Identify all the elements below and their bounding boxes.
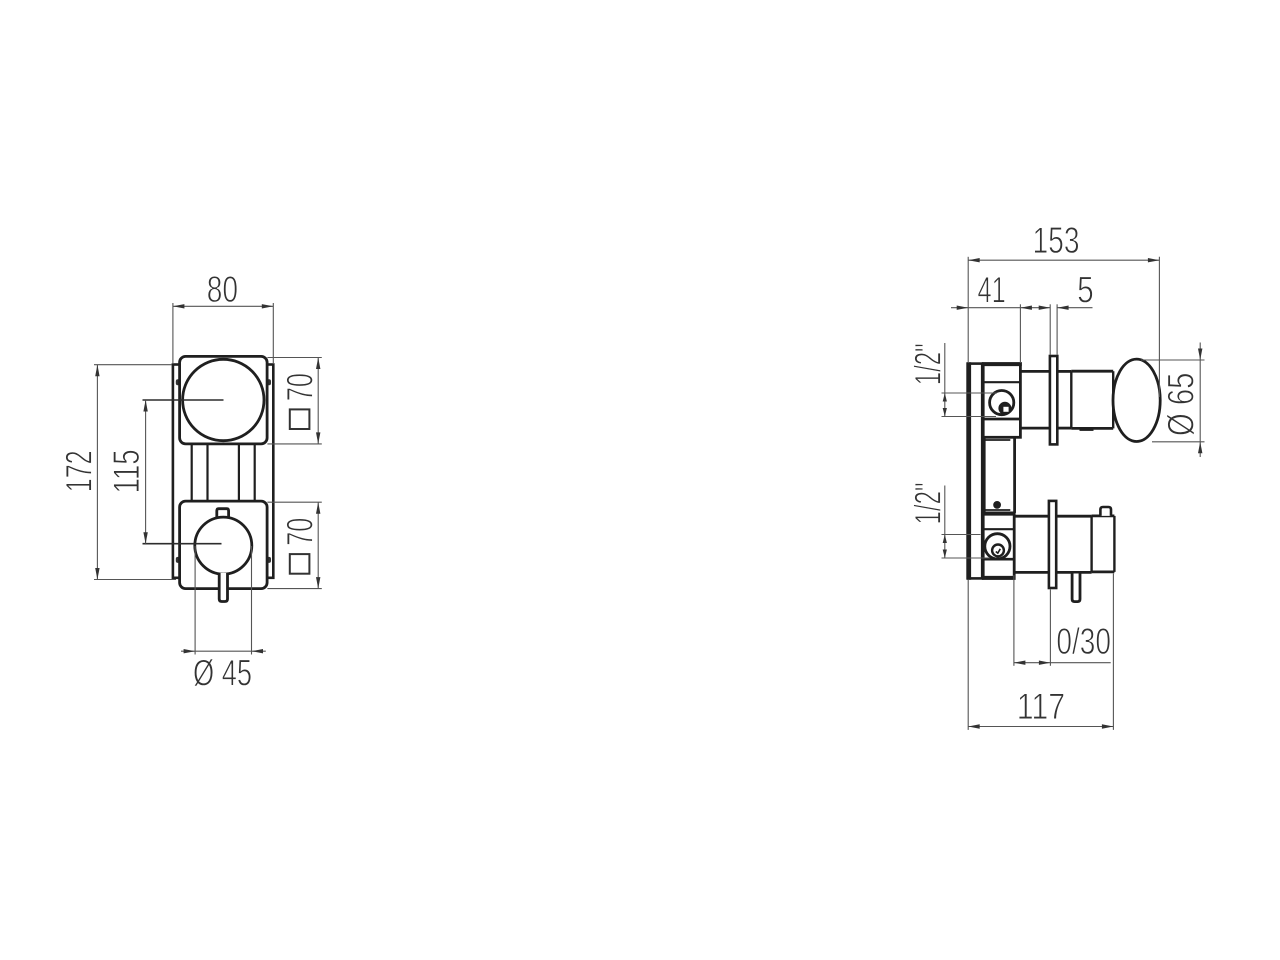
svg-text:1/2": 1/2" — [907, 483, 949, 525]
svg-text:70: 70 — [279, 518, 321, 546]
svg-text:70: 70 — [279, 373, 321, 401]
svg-text:Ø 65: Ø 65 — [1160, 373, 1202, 437]
svg-text:153: 153 — [1032, 219, 1079, 261]
svg-text:80: 80 — [207, 268, 238, 310]
svg-text:172: 172 — [58, 450, 100, 492]
svg-text:41: 41 — [977, 269, 1005, 311]
svg-text:117: 117 — [1017, 685, 1065, 727]
svg-text:1/2": 1/2" — [907, 343, 949, 385]
svg-text:Ø 45: Ø 45 — [193, 651, 252, 693]
svg-text:0/30: 0/30 — [1056, 620, 1111, 662]
svg-text:115: 115 — [105, 449, 147, 493]
svg-text:5: 5 — [1077, 269, 1094, 311]
